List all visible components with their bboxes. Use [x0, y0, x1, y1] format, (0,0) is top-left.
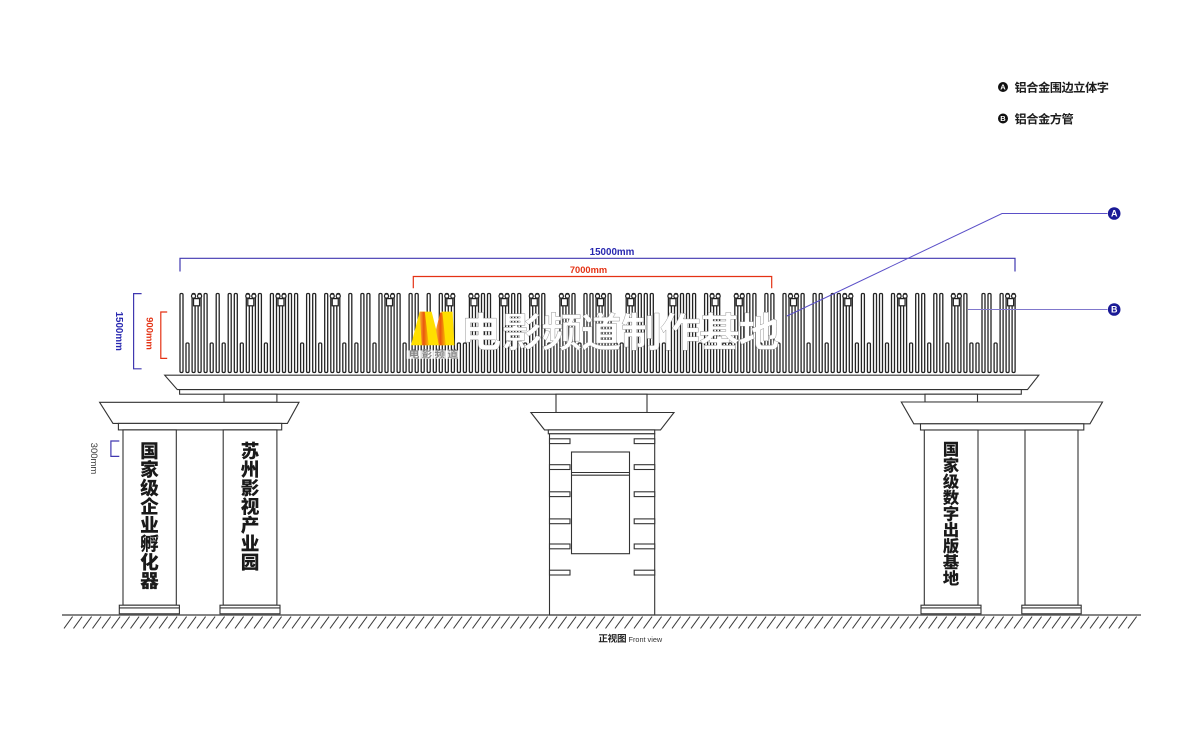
svg-text:B: B: [1111, 305, 1118, 315]
svg-text:1500mm: 1500mm: [113, 312, 124, 352]
svg-text:7000mm: 7000mm: [570, 265, 607, 275]
svg-text:900mm: 900mm: [143, 317, 154, 350]
svg-text:B: B: [1000, 114, 1006, 123]
svg-text:A: A: [1111, 209, 1118, 219]
svg-text:Front view: Front view: [629, 635, 663, 644]
svg-text:A: A: [1000, 83, 1006, 92]
svg-text:15000mm: 15000mm: [590, 247, 635, 258]
svg-text:300mm: 300mm: [88, 443, 99, 475]
